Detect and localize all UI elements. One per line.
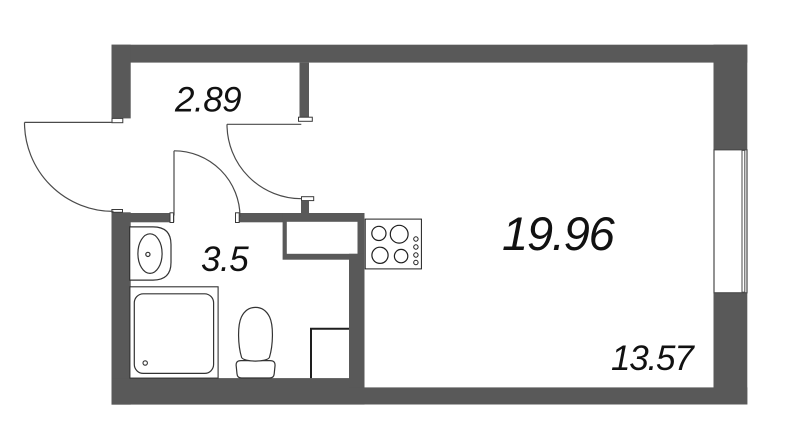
svg-text:13.57: 13.57 [611, 339, 695, 378]
svg-text:3.5: 3.5 [201, 240, 249, 279]
svg-text:19.96: 19.96 [502, 207, 616, 260]
svg-text:2.89: 2.89 [174, 81, 241, 120]
